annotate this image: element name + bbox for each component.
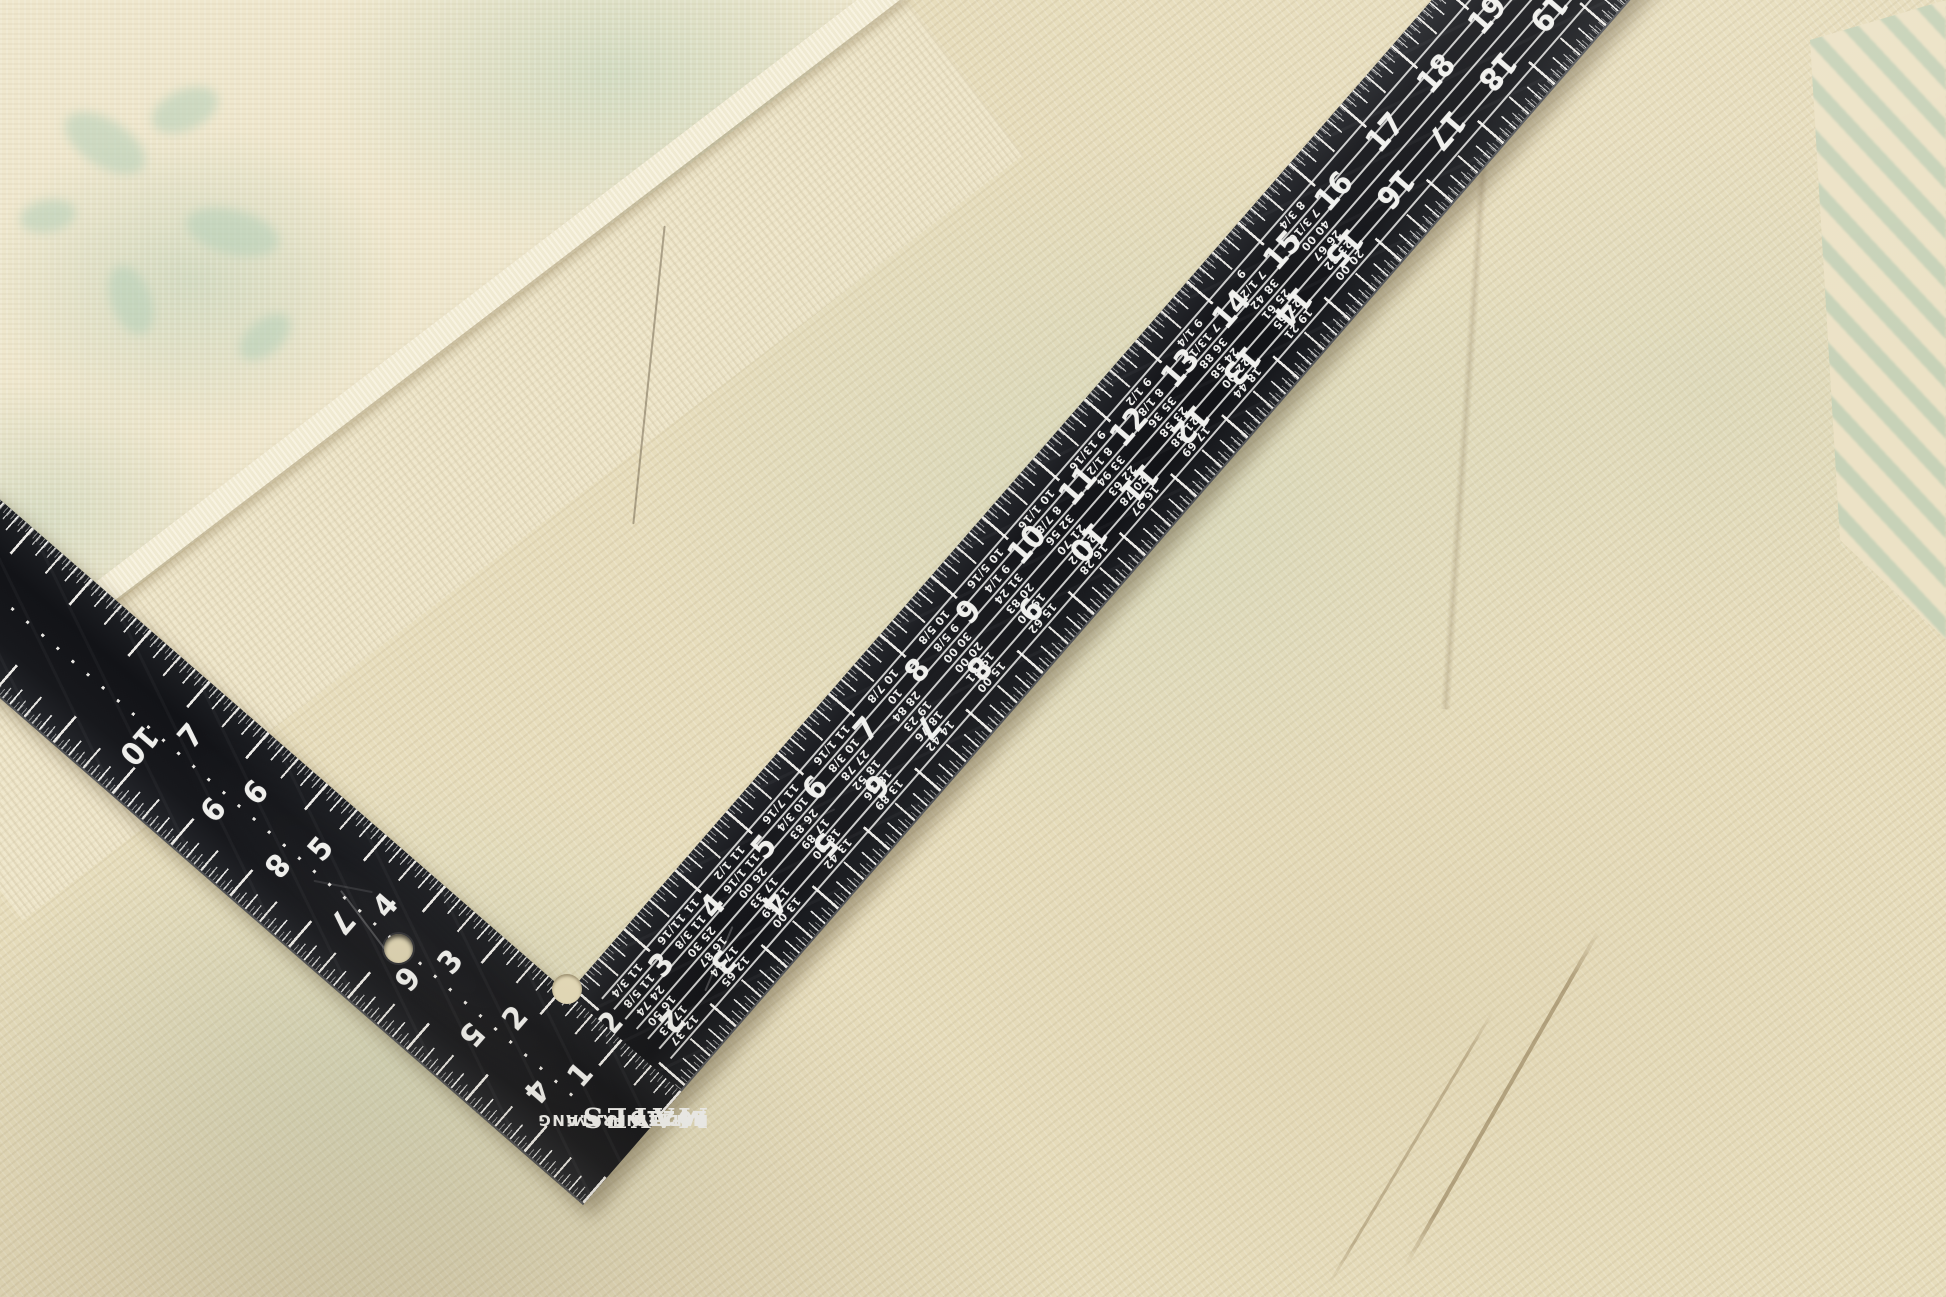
inch-number-tongue-inner: 5 [303,832,339,867]
inch-number-tongue-inner: 6 [238,775,274,810]
inch-number-tongue-outer: 6 [388,960,424,995]
photo-scene: 1234567891011121314151617181920212212345… [0,0,1946,1297]
rafter-table-rule-line [636,0,1773,1029]
framing-square: 1234567891011121314151617181920212212345… [0,0,1946,1297]
heel-relief-notch [552,974,582,1004]
brand-model-number: 10219 [627,1106,708,1128]
hang-hole [384,934,413,963]
inch-number-tongue-outer: 8 [258,847,294,882]
inch-number-tongue-outer: 9 [193,791,229,826]
inch-number-tongue-inner: 4 [368,888,404,923]
inch-number-tongue-inner: 7 [173,719,209,754]
inch-number-tongue-inner: 3 [433,945,469,980]
body-outer-edge-ticks [556,0,1828,1204]
brand-stamp: MAYES RAFTER-FRAMiNG MADE IN U.S.A 10219 [458,1006,708,1132]
